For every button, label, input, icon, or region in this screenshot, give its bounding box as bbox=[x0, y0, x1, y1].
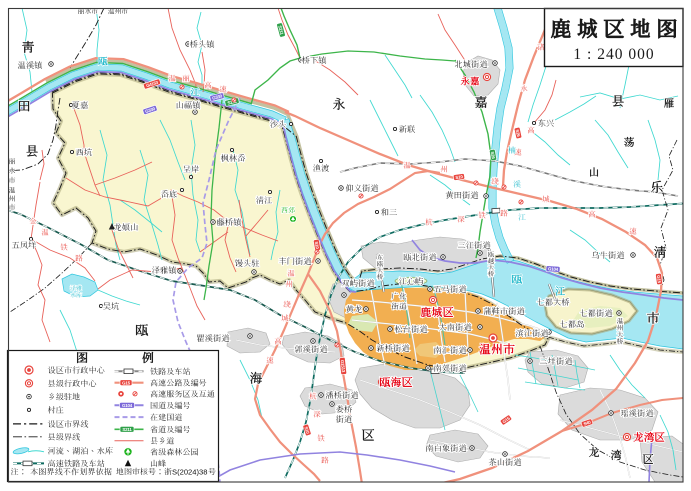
svg-text:G104: G104 bbox=[548, 266, 559, 272]
svg-text:1 : 240 000: 1 : 240 000 bbox=[573, 46, 654, 63]
svg-text:G104: G104 bbox=[122, 403, 133, 408]
svg-text:S211: S211 bbox=[122, 427, 132, 432]
svg-text:S(2024)38: S(2024)38 bbox=[172, 467, 207, 476]
svg-text:G15: G15 bbox=[122, 380, 130, 385]
